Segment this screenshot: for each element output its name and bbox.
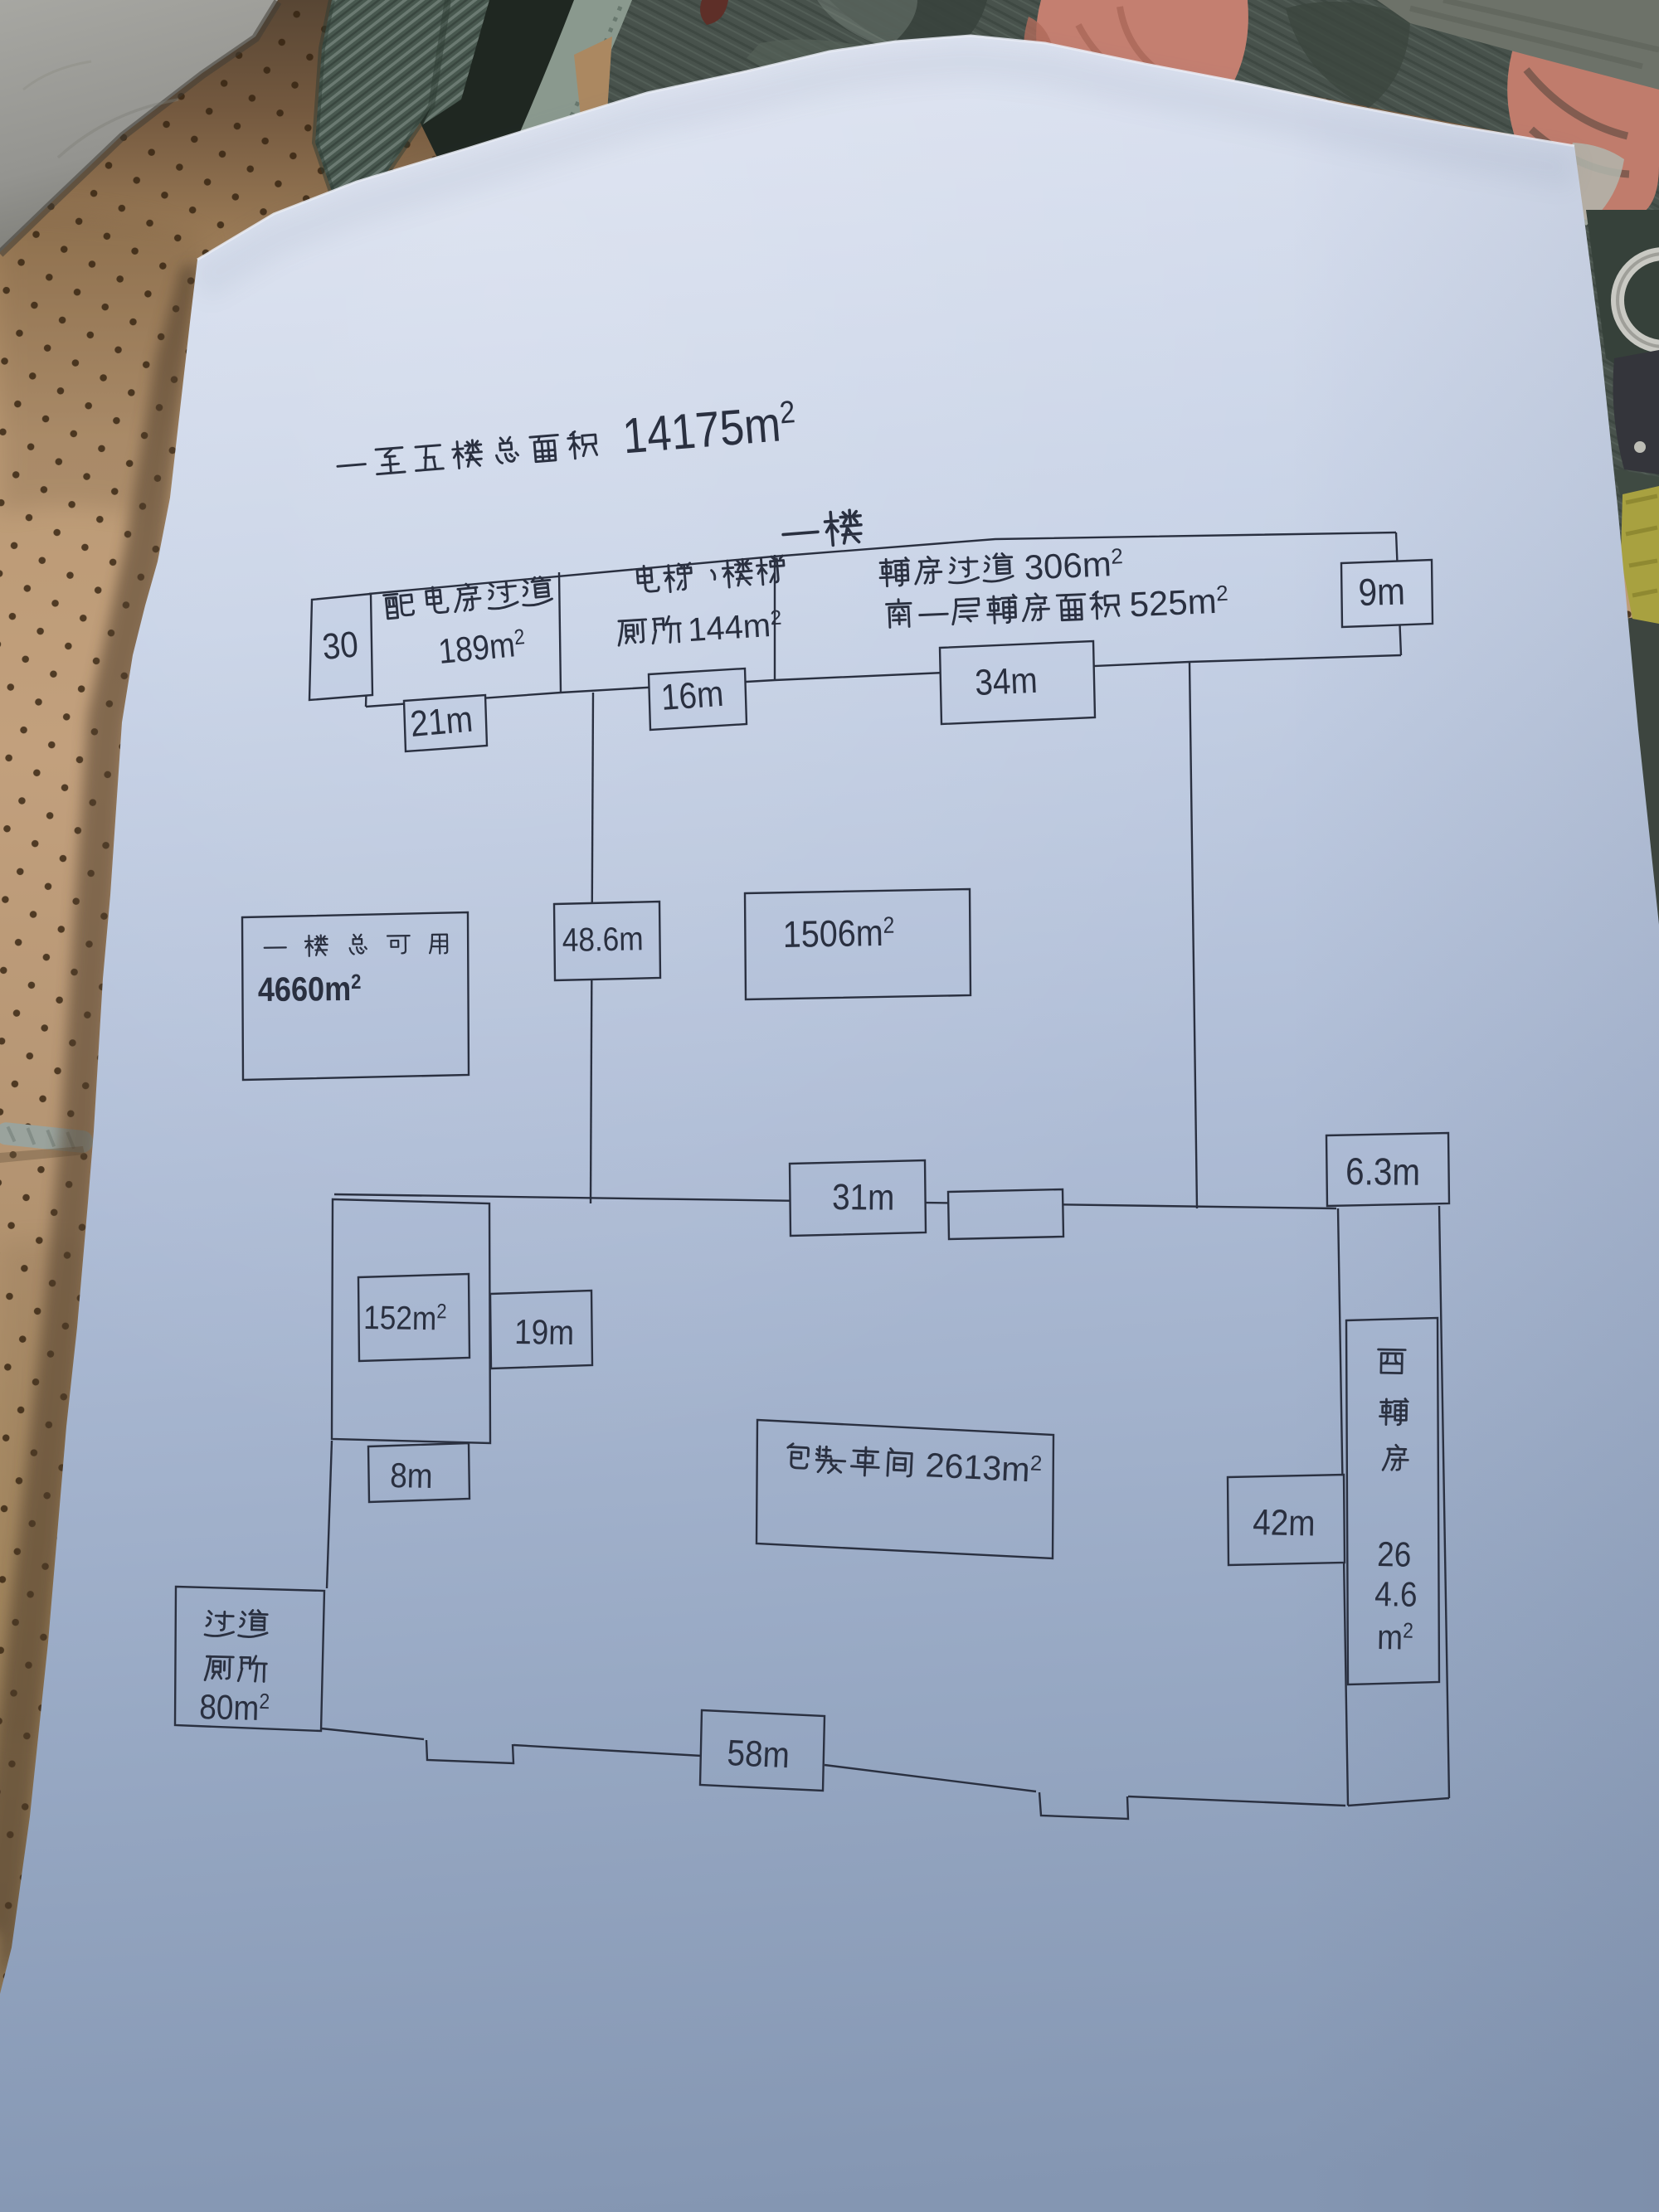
svg-text:30: 30 <box>320 623 359 667</box>
svg-text:306m2: 306m2 <box>1024 543 1124 587</box>
svg-text:152m2: 152m2 <box>363 1299 447 1337</box>
svg-text:144m2: 144m2 <box>687 606 783 649</box>
svg-text:31m: 31m <box>832 1176 895 1218</box>
svg-text:8m: 8m <box>390 1456 433 1496</box>
svg-text:9m: 9m <box>1358 571 1406 614</box>
svg-text:34m: 34m <box>974 659 1038 702</box>
svg-text:4660m2: 4660m2 <box>258 970 362 1009</box>
svg-text:1506m2: 1506m2 <box>782 912 895 955</box>
svg-text:42m: 42m <box>1253 1501 1316 1544</box>
svg-text:4.6: 4.6 <box>1374 1575 1418 1615</box>
svg-text:525m2: 525m2 <box>1129 581 1229 625</box>
svg-text:2613m2: 2613m2 <box>925 1446 1043 1490</box>
svg-text:6.3m: 6.3m <box>1345 1151 1420 1194</box>
svg-text:48.6m: 48.6m <box>562 920 644 958</box>
svg-text:58m: 58m <box>727 1732 791 1776</box>
svg-text:16m: 16m <box>659 673 725 718</box>
svg-text:26: 26 <box>1377 1535 1412 1574</box>
svg-text:19m: 19m <box>514 1313 575 1353</box>
svg-text:21m: 21m <box>408 698 474 744</box>
